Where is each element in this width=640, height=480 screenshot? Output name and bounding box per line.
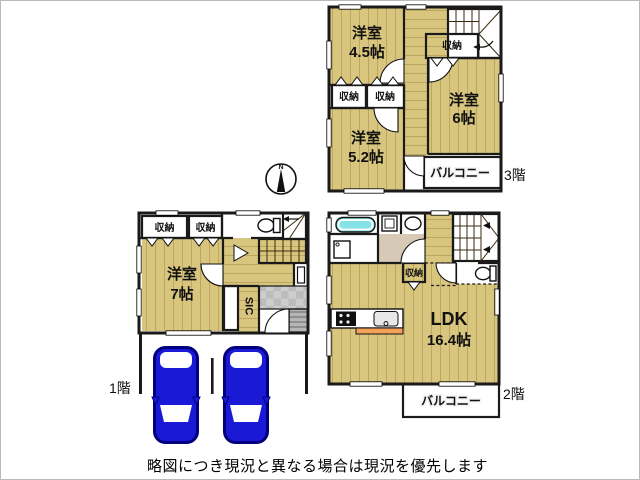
stove-icon	[336, 312, 356, 327]
room-size: 4.5帖	[349, 43, 385, 61]
compass-icon: N	[261, 157, 301, 201]
floor2-label: 2階	[503, 384, 525, 404]
floor3-label: 3階	[504, 165, 526, 185]
closet-label: 収納	[196, 221, 216, 234]
floor2-plan: 収納	[323, 201, 523, 423]
closet-label: 収納	[405, 267, 423, 278]
closet-a: 収納	[332, 85, 366, 108]
toilet-room	[456, 263, 499, 284]
balcony: バルコニー	[424, 157, 501, 188]
kitchen-sink-icon	[374, 312, 398, 327]
stairs-icon	[453, 214, 499, 261]
floorplan-canvas: 収納 収納 収納 バルコニー	[0, 0, 640, 480]
closet-a: 収納	[142, 216, 187, 238]
car-icon	[152, 348, 200, 443]
car-icon	[222, 348, 270, 443]
balcony-label: バルコニー	[421, 394, 481, 408]
sic-label: SIC	[243, 297, 255, 315]
wall-cabinet	[224, 286, 238, 330]
hallway	[425, 213, 453, 263]
room-name: 洋室	[352, 24, 382, 42]
floor3-plan: 収納 収納 収納 バルコニー	[323, 1, 523, 199]
balcony: バルコニー	[403, 384, 499, 417]
closet-label: 収納	[442, 39, 462, 52]
counter-ledge	[356, 328, 403, 334]
room-size: 16.4帖	[427, 331, 471, 349]
room-name: LDK	[431, 309, 468, 329]
washing-machine-icon	[334, 241, 350, 258]
sink-icon	[405, 217, 421, 230]
entrance-tile	[259, 286, 306, 309]
closet-b: 収納	[189, 216, 222, 238]
disclaimer-caption: 略図につき現況と異なる場合は現況を優先します	[147, 455, 488, 476]
room-size: 6帖	[452, 109, 475, 127]
floor1-label: 1階	[109, 378, 131, 398]
porch-step	[289, 309, 308, 333]
shower-icon	[382, 216, 397, 231]
room-size: 5.2帖	[348, 148, 384, 166]
bathtub-icon	[336, 218, 375, 233]
room-name: 洋室	[449, 91, 479, 109]
closet-label: 収納	[375, 90, 395, 103]
hallway	[404, 58, 428, 156]
closet-label: 収納	[339, 90, 359, 103]
toilet-icon	[258, 219, 280, 233]
closet-b: 収納	[367, 85, 404, 108]
room-western-7	[142, 238, 223, 331]
closet-label: 収納	[155, 221, 175, 234]
floor1-plan: 収納 収納	[101, 201, 321, 451]
room-name: 洋室	[167, 265, 197, 283]
toilet-icon	[476, 266, 497, 281]
balcony-label: バルコニー	[430, 166, 490, 180]
room-size: 7帖	[170, 285, 193, 303]
room-name: 洋室	[351, 129, 381, 147]
